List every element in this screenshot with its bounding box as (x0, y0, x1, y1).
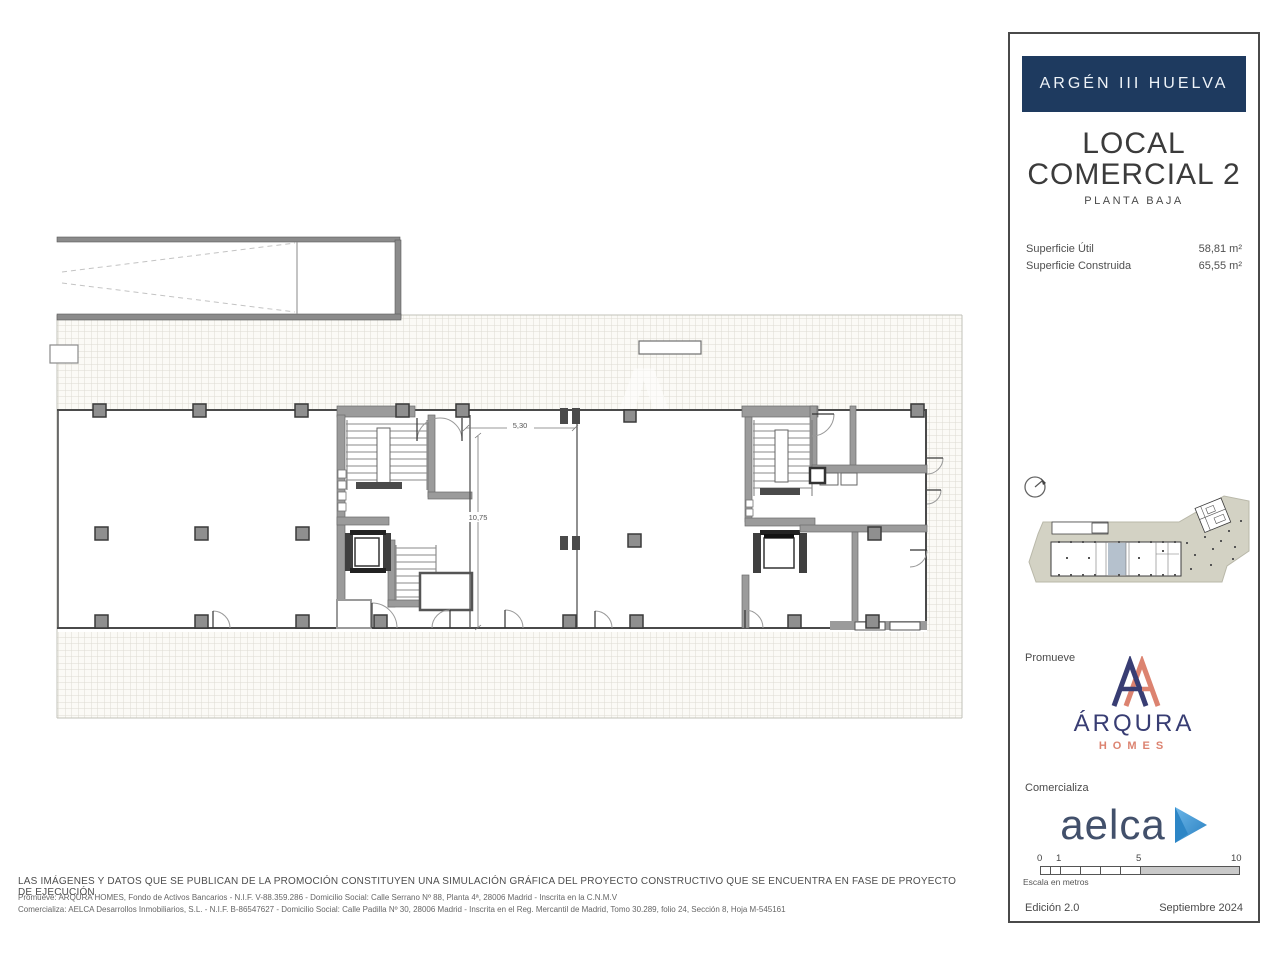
brochure-page: A (0, 0, 1280, 960)
highlighted-unit (1108, 543, 1126, 575)
aelca-triangle-icon (1174, 806, 1208, 844)
pavement-notch (50, 345, 78, 363)
utility-room (420, 573, 472, 610)
surface-label: Superficie Construida (1026, 258, 1131, 275)
surface-value: 58,81 m² (1199, 241, 1242, 258)
promoter-legal-line: Promueve: ARQURA HOMES, Fondo de Activos… (18, 893, 978, 902)
page-title: LOCAL COMERCIAL 2 (1010, 128, 1258, 190)
edition-label: Edición 2.0 (1025, 902, 1079, 914)
scale-tick: 1 (1056, 853, 1061, 864)
floor-plan: A (0, 0, 1010, 790)
scale-tick: 5 (1136, 853, 1141, 864)
surface-row: Superficie Útil 58,81 m² (1026, 241, 1242, 258)
floor-label: PLANTA BAJA (1010, 195, 1258, 207)
seller-legal-line: Comercializa: AELCA Desarrollos Inmobili… (18, 905, 978, 914)
seller-section-label: Comercializa (1025, 782, 1089, 794)
scale-caption: Escala en metros (1023, 877, 1089, 887)
project-header: ARGÉN III HUELVA (1022, 56, 1246, 112)
scale-tick-labels: 0 1 5 10 (1010, 853, 1258, 864)
entry-step (337, 600, 371, 628)
surface-value: 65,55 m² (1199, 258, 1242, 275)
scale-tick: 10 (1231, 853, 1242, 864)
info-panel: ARGÉN III HUELVA LOCAL COMERCIAL 2 PLANT… (1008, 32, 1260, 923)
scale-tick: 0 (1037, 853, 1042, 864)
aelca-logo: aelca (1010, 800, 1258, 850)
project-title: ARGÉN III HUELVA (1040, 75, 1229, 93)
seller-logo-text: aelca (1060, 804, 1165, 846)
surface-table: Superficie Útil 58,81 m² Superficie Cons… (1026, 241, 1242, 275)
scale-bar (1040, 866, 1240, 875)
floor-plan-area: A (0, 0, 1010, 790)
svg-text:10,75: 10,75 (469, 513, 488, 522)
svg-text:5,30: 5,30 (513, 421, 528, 430)
arqura-logo-mark (1106, 656, 1166, 708)
unit-title-line1: LOCAL (1010, 128, 1258, 159)
site-minimap (1018, 490, 1254, 606)
promoter-logo-text: ÁRQURA (1010, 710, 1258, 738)
unit-title-line2: COMERCIAL 2 (1010, 159, 1258, 190)
parking-ramp (57, 237, 401, 320)
promoter-section-label: Promueve (1025, 652, 1075, 664)
surface-label: Superficie Útil (1026, 241, 1094, 258)
promoter-logo-subtext: HOMES (1010, 740, 1258, 752)
date-label: Septiembre 2024 (1159, 902, 1243, 914)
surface-row: Superficie Construida 65,55 m² (1026, 258, 1242, 275)
